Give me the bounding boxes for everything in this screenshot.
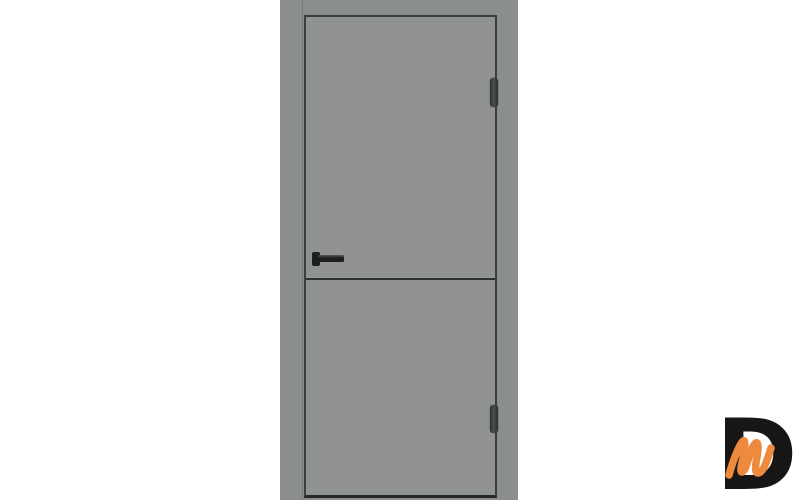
frame-edge-line — [302, 0, 303, 500]
door-groove-divider — [306, 278, 496, 281]
brand-logo-watermark: D m — [714, 415, 794, 495]
logo-letter-m: m — [714, 495, 715, 496]
door-handle-lever — [318, 255, 344, 262]
brand-logo-graphic: D — [714, 415, 794, 495]
hinge-top — [490, 78, 498, 107]
product-image: D m — [0, 0, 800, 500]
door-leaf — [304, 15, 498, 498]
door-frame — [280, 0, 518, 500]
hinge-bottom — [490, 405, 498, 433]
